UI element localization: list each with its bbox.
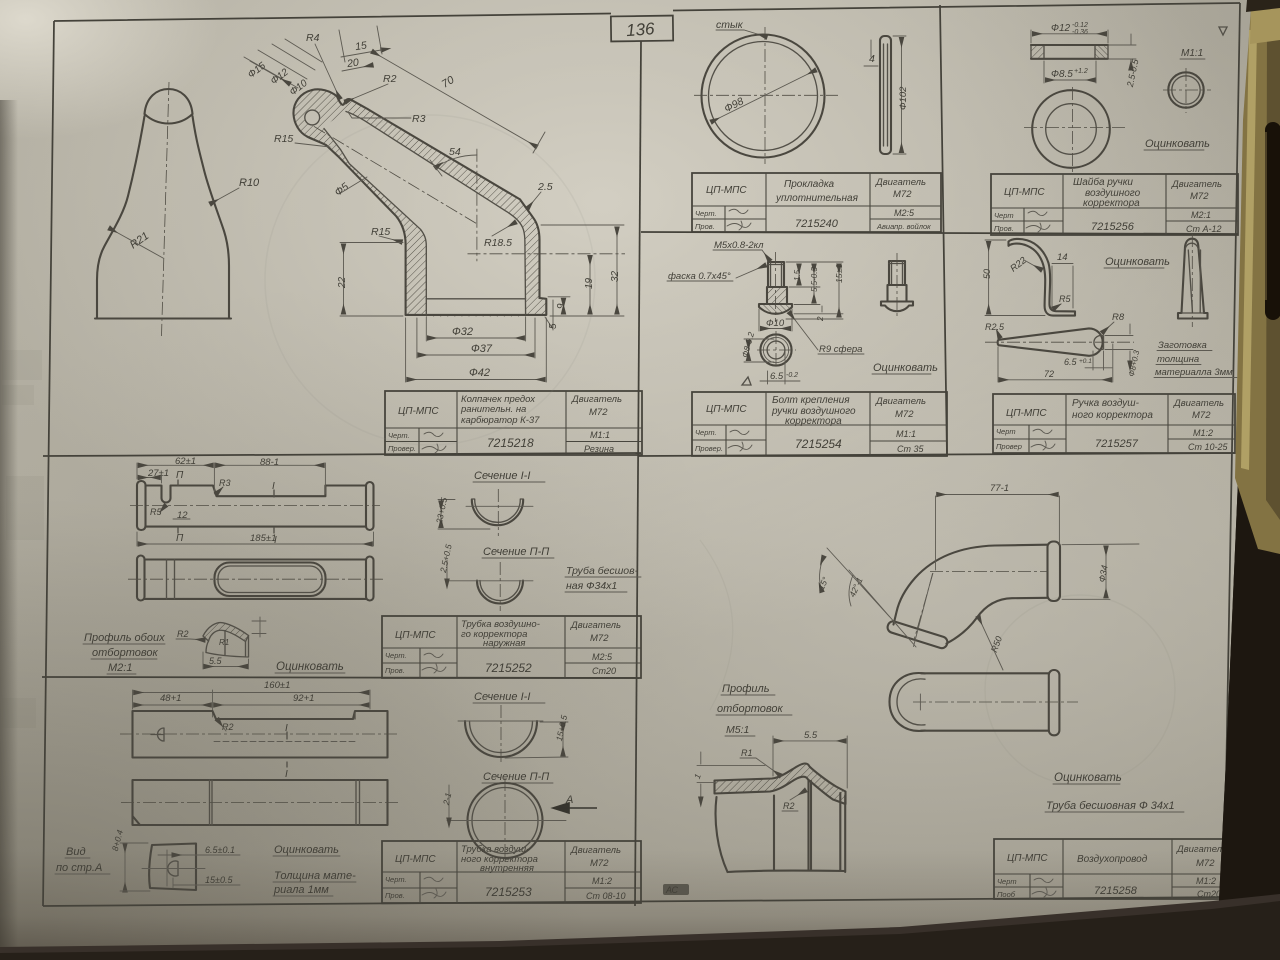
- svg-text:корректора: корректора: [785, 416, 842, 427]
- svg-text:Оцинковать: Оцинковать: [1105, 256, 1170, 268]
- svg-text:Пров.: Пров.: [994, 224, 1014, 233]
- svg-text:П: П: [176, 470, 184, 481]
- svg-text:R9 сфера: R9 сфера: [819, 344, 862, 355]
- svg-text:Двигатель: Двигатель: [1176, 844, 1227, 855]
- svg-text:7215256: 7215256: [1091, 221, 1135, 233]
- svg-text:Оцинковать: Оцинковать: [276, 661, 344, 673]
- svg-text:Оцинковать: Оцинковать: [1145, 138, 1210, 150]
- svg-text:15: 15: [354, 40, 367, 54]
- svg-text:Ст 08-10: Ст 08-10: [586, 891, 626, 901]
- svg-text:М72: М72: [590, 858, 609, 869]
- svg-text:АС: АС: [665, 885, 678, 895]
- svg-text:М72: М72: [1192, 410, 1211, 421]
- svg-text:М2:1: М2:1: [108, 662, 132, 674]
- svg-text:2.5-0.5: 2.5-0.5: [1125, 57, 1141, 88]
- svg-text:R2: R2: [383, 73, 397, 85]
- svg-text:7215257: 7215257: [1095, 438, 1139, 450]
- svg-text:карбюратор К-37: карбюратор К-37: [461, 415, 540, 426]
- svg-text:R4: R4: [306, 32, 320, 44]
- svg-text:Черт.: Черт.: [385, 651, 407, 660]
- svg-text:Ф8.5: Ф8.5: [1051, 69, 1073, 80]
- svg-text:5: 5: [548, 323, 559, 329]
- svg-text:ЦП-МПС: ЦП-МПС: [1006, 408, 1047, 419]
- svg-text:7215253: 7215253: [485, 885, 532, 899]
- svg-text:5.5: 5.5: [209, 656, 223, 666]
- svg-text:R5: R5: [150, 507, 162, 517]
- svg-text:+1.2: +1.2: [1074, 68, 1088, 75]
- svg-text:Авиапр. войлок: Авиапр. войлок: [876, 222, 931, 231]
- svg-text:Ф5: Ф5: [332, 181, 351, 199]
- svg-text:ная Ф34х1: ная Ф34х1: [566, 580, 617, 592]
- svg-text:Двигатель: Двигатель: [1173, 398, 1224, 409]
- svg-text:Пооб: Пооб: [997, 890, 1016, 899]
- svg-text:1.5: 1.5: [793, 269, 802, 281]
- svg-text:Профиль обоих: Профиль обоих: [84, 632, 165, 644]
- svg-text:М1:1: М1:1: [896, 429, 916, 439]
- svg-text:ного корректора: ного корректора: [1072, 410, 1153, 421]
- svg-text:4: 4: [869, 53, 875, 65]
- svg-text:Ст20: Ст20: [592, 666, 616, 676]
- svg-text:77-1: 77-1: [990, 483, 1009, 494]
- svg-text:Провер.: Провер.: [695, 444, 723, 453]
- svg-text:Сечение П-П: Сечение П-П: [483, 771, 549, 783]
- svg-text:М72: М72: [589, 407, 608, 418]
- svg-text:риала 1мм: риала 1мм: [273, 884, 329, 896]
- svg-text:Ст 35: Ст 35: [897, 444, 925, 454]
- svg-text:материалла 3мм: материалла 3мм: [1155, 367, 1233, 378]
- svg-text:Ф8+0.3: Ф8+0.3: [1127, 349, 1141, 377]
- svg-text:Ф98: Ф98: [722, 95, 745, 115]
- svg-text:Двигатель: Двигатель: [571, 394, 622, 405]
- svg-text:R5: R5: [1059, 294, 1071, 304]
- svg-text:Черт.: Черт.: [385, 875, 407, 884]
- svg-text:Провер: Провер: [996, 442, 1022, 451]
- svg-text:М72: М72: [590, 633, 609, 644]
- svg-text:М1:1: М1:1: [1181, 48, 1203, 59]
- svg-text:Воздухопровод: Воздухопровод: [1077, 854, 1148, 865]
- svg-text:9: 9: [556, 303, 567, 309]
- svg-text:ЦП-МПС: ЦП-МПС: [706, 404, 747, 415]
- svg-text:6.5±0.1: 6.5±0.1: [205, 845, 235, 855]
- svg-text:2: 2: [816, 316, 825, 322]
- svg-text:88-1: 88-1: [260, 457, 279, 468]
- svg-text:5.5: 5.5: [804, 730, 818, 741]
- svg-text:2.5+0.5: 2.5+0.5: [438, 543, 454, 574]
- svg-text:-0.2: -0.2: [786, 372, 798, 379]
- svg-text:Черт.: Черт.: [695, 428, 717, 437]
- svg-text:Ф37: Ф37: [471, 343, 493, 355]
- svg-text:R3: R3: [219, 478, 231, 488]
- svg-text:М72: М72: [1190, 191, 1209, 202]
- svg-text:15°: 15°: [816, 575, 831, 591]
- svg-text:М5х0.8-2кл: М5х0.8-2кл: [714, 240, 764, 251]
- svg-text:2-1: 2-1: [441, 791, 454, 806]
- svg-text:ЦП-МПС: ЦП-МПС: [395, 630, 436, 641]
- svg-text:Ст А-12: Ст А-12: [1186, 224, 1222, 234]
- svg-text:Черт: Черт: [994, 211, 1014, 220]
- svg-text:М72: М72: [895, 409, 914, 420]
- svg-text:Провер.: Провер.: [388, 444, 416, 453]
- svg-text:ЦП-МПС: ЦП-МПС: [1004, 187, 1045, 198]
- svg-text:15+0.5: 15+0.5: [554, 714, 569, 742]
- svg-text:7215254: 7215254: [795, 437, 842, 451]
- svg-text:Ф15: Ф15: [246, 60, 268, 81]
- svg-text:ЦП-МПС: ЦП-МПС: [395, 854, 436, 865]
- svg-text:М72: М72: [893, 189, 912, 200]
- svg-text:Профиль: Профиль: [722, 683, 770, 695]
- svg-text:Оцинковать: Оцинковать: [873, 362, 938, 374]
- svg-text:М1:2: М1:2: [1196, 876, 1216, 886]
- svg-text:П: П: [176, 533, 184, 544]
- svg-text:R10: R10: [239, 177, 260, 189]
- svg-text:R1: R1: [219, 638, 229, 647]
- svg-text:Ручка воздуш-: Ручка воздуш-: [1072, 398, 1140, 409]
- svg-text:Двигатель: Двигатель: [1171, 179, 1222, 190]
- svg-text:R1: R1: [741, 748, 753, 758]
- svg-text:+0.1: +0.1: [1079, 358, 1092, 365]
- svg-text:50: 50: [982, 269, 992, 279]
- svg-text:Пров.: Пров.: [385, 666, 405, 675]
- svg-text:ЦП-МПС: ЦП-МПС: [398, 406, 439, 417]
- svg-text:Сечение П-П: Сечение П-П: [483, 546, 549, 558]
- svg-text:фаска 0.7х45°: фаска 0.7х45°: [668, 271, 731, 282]
- svg-text:15±0.5: 15±0.5: [205, 875, 233, 885]
- svg-text:23+0.5: 23+0.5: [434, 496, 450, 525]
- svg-text:Ф102: Ф102: [898, 86, 909, 110]
- svg-text:Сечение I-I: Сечение I-I: [474, 470, 530, 482]
- svg-text:Ст20: Ст20: [1197, 889, 1221, 899]
- svg-text:R2: R2: [177, 629, 189, 639]
- svg-text:6.5: 6.5: [770, 371, 784, 382]
- svg-text:Оцинковать: Оцинковать: [1054, 772, 1122, 784]
- svg-text:Ф12: Ф12: [269, 67, 291, 88]
- svg-text:7215240: 7215240: [795, 218, 839, 230]
- svg-text:Черт.: Черт.: [695, 209, 717, 218]
- svg-text:ранительн. на: ранительн. на: [460, 404, 526, 415]
- svg-text:Прокладка: Прокладка: [784, 179, 835, 190]
- svg-text:R18.5: R18.5: [484, 237, 512, 249]
- svg-text:19: 19: [584, 277, 595, 289]
- svg-text:Толщина мате-: Толщина мате-: [274, 870, 356, 882]
- svg-text:-0.36: -0.36: [1072, 29, 1088, 36]
- svg-text:R15: R15: [274, 133, 293, 145]
- svg-text:R2: R2: [783, 801, 795, 811]
- svg-text:Заготовка: Заготовка: [1158, 340, 1207, 351]
- svg-text:Резина: Резина: [584, 444, 614, 454]
- svg-text:ЦП-МПС: ЦП-МПС: [1007, 853, 1048, 864]
- svg-text:М2:5: М2:5: [592, 652, 613, 662]
- svg-text:1: 1: [692, 772, 703, 780]
- svg-text:Труба бесшов-: Труба бесшов-: [566, 565, 639, 577]
- svg-text:R22: R22: [1008, 255, 1029, 275]
- svg-text:М1:2: М1:2: [1193, 428, 1213, 438]
- svg-text:Пров.: Пров.: [695, 222, 715, 231]
- svg-text:Пров.: Пров.: [385, 891, 405, 900]
- svg-text:48+1: 48+1: [160, 693, 181, 704]
- svg-text:Черт.: Черт.: [388, 431, 410, 440]
- svg-text:92+1: 92+1: [293, 693, 314, 704]
- svg-text:отбортовок: отбортовок: [92, 647, 158, 659]
- svg-text:корректора: корректора: [1083, 198, 1140, 209]
- svg-text:R3: R3: [412, 113, 426, 125]
- svg-text:толщина: толщина: [1157, 354, 1199, 365]
- svg-text:Вид: Вид: [66, 846, 86, 858]
- svg-text:Ф10: Ф10: [766, 318, 785, 329]
- svg-text:7215252: 7215252: [485, 661, 532, 675]
- svg-text:М1:2: М1:2: [592, 876, 612, 886]
- svg-text:6.5: 6.5: [1064, 357, 1078, 367]
- svg-text:8+0.4: 8+0.4: [110, 829, 125, 853]
- svg-text:наружная: наружная: [483, 638, 525, 649]
- svg-text:15±1: 15±1: [834, 264, 844, 283]
- svg-text:М5:1: М5:1: [726, 724, 749, 736]
- svg-text:7215218: 7215218: [487, 436, 534, 450]
- svg-text:Ф32: Ф32: [452, 326, 473, 338]
- svg-text:I: I: [285, 769, 288, 780]
- svg-text:Двигатель: Двигатель: [570, 845, 621, 856]
- svg-text:Ф8-0.2: Ф8-0.2: [740, 331, 756, 359]
- svg-text:уплотнительная: уплотнительная: [775, 193, 859, 204]
- svg-text:Труба бесшовная Ф 34х1: Труба бесшовная Ф 34х1: [1046, 800, 1175, 812]
- svg-text:R8: R8: [1112, 312, 1125, 323]
- svg-text:по стр.А: по стр.А: [56, 862, 102, 874]
- svg-text:М2:5: М2:5: [894, 208, 915, 218]
- svg-text:7215258: 7215258: [1094, 885, 1138, 897]
- svg-text:Болт крепления: Болт крепления: [772, 395, 850, 406]
- svg-text:Двигатель: Двигатель: [875, 177, 926, 188]
- svg-text:-0.12: -0.12: [1072, 22, 1088, 29]
- svg-text:Двигатель: Двигатель: [875, 396, 926, 407]
- svg-text:Сечение I-I: Сечение I-I: [474, 691, 530, 703]
- svg-text:185±1: 185±1: [250, 533, 276, 544]
- svg-text:Шайба ручки: Шайба ручки: [1073, 176, 1133, 188]
- svg-text:R2.5: R2.5: [985, 322, 1005, 332]
- svg-text:Ф42: Ф42: [469, 367, 490, 379]
- svg-text:М2:1: М2:1: [1191, 210, 1211, 220]
- svg-text:внутренняя: внутренняя: [480, 863, 534, 874]
- svg-text:160±1: 160±1: [264, 680, 290, 691]
- svg-text:72: 72: [1044, 369, 1054, 379]
- svg-text:отбортовок: отбортовок: [717, 703, 783, 715]
- svg-text:5.5-0.3: 5.5-0.3: [810, 267, 819, 292]
- svg-text:стык: стык: [716, 19, 744, 31]
- svg-text:Двигатель: Двигатель: [570, 620, 621, 631]
- svg-text:Ф12: Ф12: [1051, 23, 1071, 34]
- svg-text:М1:1: М1:1: [590, 430, 610, 440]
- svg-text:Черт: Черт: [996, 427, 1016, 436]
- svg-text:R2: R2: [222, 722, 234, 732]
- svg-text:2.5: 2.5: [537, 181, 553, 193]
- svg-text:136: 136: [625, 19, 655, 40]
- svg-text:14: 14: [1057, 252, 1068, 263]
- svg-text:32: 32: [610, 270, 621, 282]
- svg-text:Ф34: Ф34: [1097, 564, 1110, 583]
- svg-text:Ст 10-25: Ст 10-25: [1188, 442, 1229, 452]
- svg-text:М72: М72: [1196, 858, 1215, 869]
- svg-text:Оцинковать: Оцинковать: [274, 844, 339, 856]
- svg-text:22: 22: [337, 276, 348, 289]
- svg-text:Черт: Черт: [997, 877, 1017, 886]
- svg-text:54: 54: [449, 146, 461, 158]
- svg-text:ЦП-МПС: ЦП-МПС: [706, 185, 747, 196]
- svg-text:70: 70: [440, 74, 457, 91]
